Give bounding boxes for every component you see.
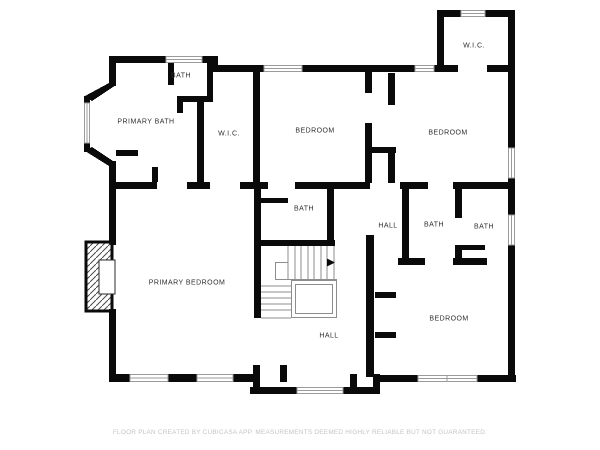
window	[264, 66, 302, 72]
window	[166, 57, 202, 63]
room-label-hall-bottom: HALL	[319, 333, 338, 340]
room-label-hall-middle: HALL	[378, 223, 397, 230]
window	[85, 103, 90, 143]
room-label-bath-middle: BATH	[424, 222, 444, 229]
room-label-primary-bath: PRIMARY BATH	[117, 119, 174, 126]
window	[415, 66, 434, 72]
window	[197, 375, 233, 382]
room-label-bedroom-bottom-right: BEDROOM	[429, 316, 468, 323]
window	[130, 375, 168, 382]
room-label-bath-stairs: BATH	[294, 206, 314, 213]
room-label-wic-top-right: W.I.C.	[463, 43, 485, 50]
fireplace	[86, 242, 115, 311]
room-label-bath-right: BATH	[474, 224, 494, 231]
room-label-bath-top-left: BATH	[171, 73, 191, 80]
room-label-bedroom-middle: BEDROOM	[295, 128, 334, 135]
room-label-bedroom-top-right: BEDROOM	[428, 130, 467, 137]
room-label-primary-bedroom: PRIMARY BEDROOM	[149, 280, 226, 287]
floor-plan: BATH PRIMARY BATH W.I.C. BEDROOM W.I.C. …	[0, 0, 600, 450]
floor-plan-drawing	[0, 0, 600, 450]
window	[297, 388, 343, 394]
staircase	[261, 246, 337, 318]
disclaimer-text: FLOOR PLAN CREATED BY CUBICASA APP. MEAS…	[113, 429, 487, 436]
room-label-wic-left: W.I.C.	[218, 131, 240, 138]
window	[509, 148, 515, 178]
window	[461, 11, 485, 17]
window	[418, 376, 477, 382]
window	[509, 215, 515, 245]
